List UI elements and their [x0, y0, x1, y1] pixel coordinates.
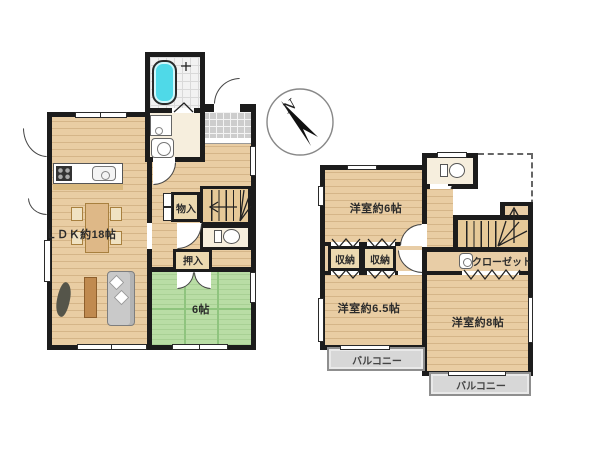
window	[250, 272, 256, 303]
room-label-tatami: 6帖	[192, 301, 210, 317]
room-label-6-5jo: 洋室約6.5帖	[338, 300, 401, 316]
room-label-8jo: 洋室約8帖	[452, 314, 505, 330]
room-label-6jo: 洋室約6帖	[350, 200, 403, 216]
door-gap	[147, 223, 152, 249]
window	[528, 297, 533, 343]
stairs-1f-steps	[205, 190, 241, 221]
window	[111, 344, 147, 350]
door-gap	[331, 271, 359, 275]
monoire-door-leaf	[163, 207, 172, 221]
window	[199, 344, 228, 350]
room-label-monoire: 物入	[176, 201, 196, 216]
toilet-icon-1f	[214, 230, 222, 243]
closet-fixture-icon	[459, 253, 473, 269]
compass-north-label: N	[280, 96, 301, 117]
window	[44, 240, 51, 282]
door-gap	[367, 271, 395, 275]
sink-drain	[101, 171, 110, 180]
window	[448, 371, 506, 376]
window	[318, 186, 324, 206]
entrance-door-arc	[214, 78, 240, 104]
stairs-2f-steps	[460, 221, 498, 247]
door-gap	[331, 242, 359, 246]
genkan-step	[202, 138, 251, 144]
room-label-storage2: 収納	[370, 252, 390, 267]
window	[172, 344, 200, 350]
door-arc	[23, 128, 47, 157]
window	[318, 298, 324, 342]
toilet-bowl-1f	[223, 229, 240, 244]
kitchen-counter-front	[53, 184, 123, 190]
stove-icon	[56, 166, 72, 181]
toilet-icon-2f	[440, 164, 448, 177]
bathtub-icon	[152, 60, 177, 105]
door-gap	[367, 242, 395, 246]
vanity-icon	[150, 115, 172, 136]
window	[347, 165, 377, 170]
chair	[71, 207, 83, 221]
room-label-ldk: ＬＤＫ約18帖	[46, 226, 117, 242]
washing-machine-icon	[151, 138, 174, 158]
balcony-label-2: バルコニー	[456, 378, 506, 393]
window	[340, 345, 390, 350]
floorplan-canvas: ＬＤＫ約18帖 物入 押入 6帖	[0, 0, 600, 449]
washer-drum	[157, 142, 171, 156]
compass: N	[267, 89, 333, 155]
sink-icon	[92, 166, 116, 181]
window	[250, 146, 256, 176]
tv-board	[84, 277, 97, 318]
room-label-closet: クローゼット	[472, 254, 532, 269]
balcony-label-1: バルコニー	[352, 353, 402, 368]
vanity-drain	[155, 127, 163, 135]
closet-fixture-knob	[463, 258, 472, 267]
compass-circle	[267, 89, 333, 155]
monoire-door-leaf	[163, 193, 172, 207]
entrance-door-gap	[214, 104, 240, 112]
room-label-storage1: 収納	[335, 252, 355, 267]
window	[75, 112, 101, 118]
window	[100, 112, 127, 118]
toilet-bowl-2f	[449, 163, 465, 178]
compass-needle-icon	[281, 101, 318, 146]
window	[437, 152, 467, 158]
chair	[110, 207, 122, 221]
hall-floor-2f	[427, 189, 453, 252]
door-arc	[28, 198, 47, 215]
room-label-oshiire: 押入	[183, 253, 203, 268]
window	[77, 344, 112, 350]
genkan-tile-floor	[202, 112, 251, 138]
